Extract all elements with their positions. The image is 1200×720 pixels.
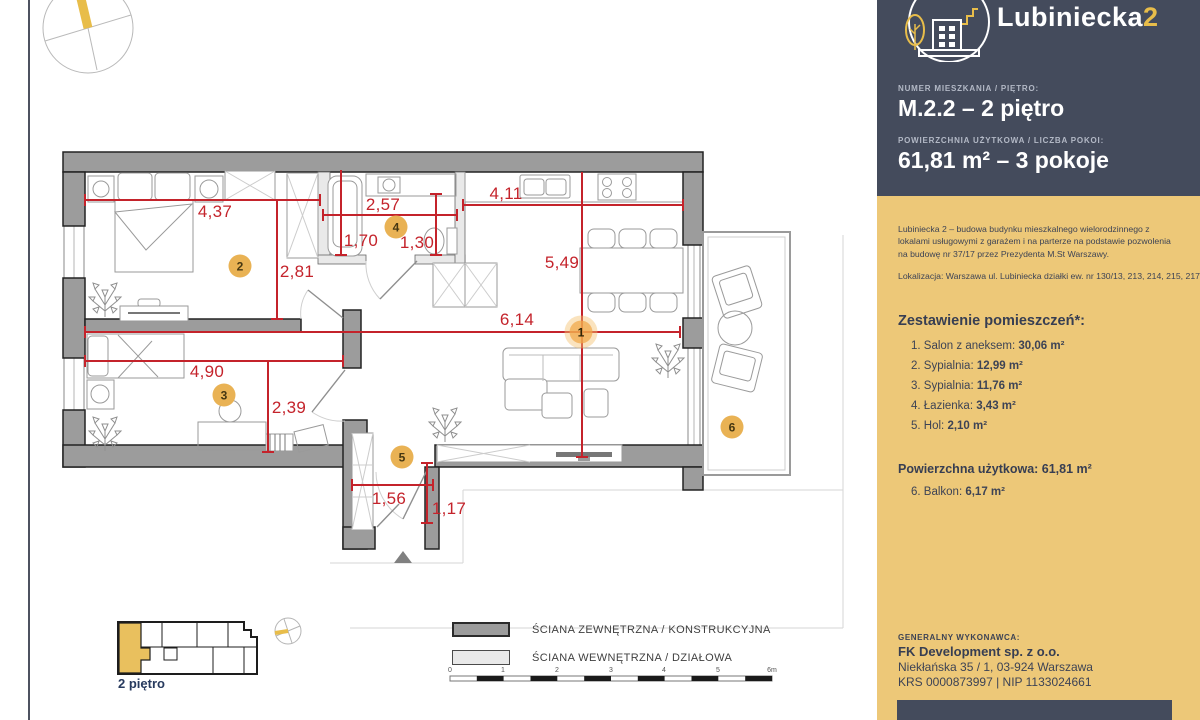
dimension-label: 1,56 [372, 489, 406, 509]
dimension-label: 6,14 [500, 310, 534, 330]
compass-icon [43, 0, 133, 73]
total-area-value: 61,81 m² [1042, 462, 1092, 476]
room-area: 11,76 m² [977, 380, 1022, 392]
project-location: Lokalizacja: Warszawa ul. Lubiniecka dzi… [898, 271, 1198, 281]
apartment-area-label: POWIERZCHNIA UŻYTKOWA / LICZBA POKOI: [898, 136, 1104, 145]
balcony [703, 232, 790, 475]
room-label: 4. Łazienka: [911, 400, 976, 412]
balcony-label: 6. Balkon: [911, 486, 965, 498]
room-badge-5: 5 [391, 446, 414, 469]
dimension-label: 2,39 [272, 398, 306, 418]
logo: Lubiniecka2 [891, 0, 1191, 62]
dimension-label: 5,49 [545, 253, 579, 273]
entrance-arrow-icon [394, 551, 412, 563]
legend-swatch-external-wall [452, 622, 510, 637]
dimension-label: 1,17 [432, 499, 466, 519]
contractor-heading: GENERALNY WYKONAWCA: [898, 633, 1020, 642]
scale-tick: 4 [662, 667, 666, 674]
scale-tick: 6m [767, 667, 777, 674]
scale-tick: 1 [501, 667, 505, 674]
logo-building-icon [891, 0, 1001, 62]
dimension-label: 1,70 [344, 231, 378, 251]
contractor-ids: KRS 0000873997 | NIP 1133024661 [898, 675, 1092, 689]
key-plan-compass-icon [275, 618, 301, 644]
key-plan-floor-label: 2 piętro [118, 676, 165, 691]
legend-swatch-internal-wall [452, 650, 510, 665]
total-area-line: Powierzchna użytkowa: 61,81 m² [898, 462, 1092, 476]
sidebar-body: Lubiniecka 2 – budowa budynku mieszkalne… [877, 196, 1200, 720]
info-sidebar: Lubiniecka2 NUMER MIESZKANIA / PIĘTRO: M… [877, 0, 1200, 720]
balcony-line: 6. Balkon: 6,17 m² [911, 486, 1005, 498]
legend-label-external-wall: ŚCIANA ZEWNĘTRZNA / KONSTRUKCYJNA [532, 624, 771, 636]
logo-wordmark: Lubiniecka2 [997, 2, 1159, 33]
balcony-area: 6,17 m² [965, 486, 1005, 498]
room-area: 2,10 m² [947, 420, 987, 432]
room-badge-2: 2 [229, 255, 252, 278]
hall-wardrobe [352, 433, 373, 530]
total-area-label: Powierzchna użytkowa: [898, 462, 1042, 476]
room-badge-6: 6 [721, 416, 744, 439]
apartment-area-value: 61,81 m² – 3 pokoje [898, 147, 1109, 174]
logo-suffix: 2 [1143, 2, 1159, 32]
bedroom3-furniture [87, 334, 328, 452]
scale-tick: 2 [555, 667, 559, 674]
room-list-heading: Zestawienie pomieszczeń*: [898, 313, 1085, 329]
dimension-label: 4,37 [198, 202, 232, 222]
room-area: 3,43 m² [976, 400, 1016, 412]
dimension-label: 4,11 [489, 184, 522, 204]
living-room-furniture [437, 348, 622, 462]
scale-tick: 3 [609, 667, 613, 674]
contractor-name: FK Development sp. z o.o. [898, 644, 1060, 659]
room-list-item: 3. Sypialnia: 11,76 m² [911, 376, 1181, 396]
dimension-label: 2,57 [366, 195, 400, 215]
room-label: 2. Sypialnia: [911, 360, 977, 372]
project-description: Lubiniecka 2 – budowa budynku mieszkalne… [898, 223, 1180, 260]
room-area: 12,99 m² [977, 360, 1023, 372]
room-badge-4: 4 [385, 216, 408, 239]
contractor-address: Niekłańska 35 / 1, 03-924 Warszawa [898, 660, 1093, 674]
room-area: 30,06 m² [1018, 340, 1064, 352]
key-plan [118, 618, 301, 674]
scale-tick: 0 [448, 667, 452, 674]
room-list-item: 4. Łazienka: 3,43 m² [911, 396, 1181, 416]
room-list-item: 2. Sypialnia: 12,99 m² [911, 356, 1181, 376]
scale-bar [450, 676, 772, 681]
scale-tick: 5 [716, 667, 720, 674]
apartment-number-value: M.2.2 – 2 piętro [898, 95, 1064, 122]
logo-name: Lubiniecka [997, 2, 1143, 32]
apartment-number-label: NUMER MIESZKANIA / PIĘTRO: [898, 84, 1039, 93]
dimension-label: 2,81 [280, 262, 314, 282]
dimension-label: 1,30 [400, 233, 434, 253]
legend-label-internal-wall: ŚCIANA WEWNĘTRZNA / DZIAŁOWA [532, 652, 732, 664]
room-label: 1. Salon z aneksem: [911, 340, 1018, 352]
room-list-item: 5. Hol: 2,10 m² [911, 416, 1181, 436]
room-badge-3: 3 [213, 384, 236, 407]
page-border-line [28, 0, 30, 720]
dimension-label: 4,90 [190, 362, 224, 382]
sidebar-footer-bar [897, 700, 1172, 720]
room-badge-1: 1 [570, 321, 593, 344]
room-list-item: 1. Salon z aneksem: 30,06 m² [911, 336, 1181, 356]
bedroom2-furniture [88, 171, 318, 321]
sidebar-header: Lubiniecka2 NUMER MIESZKANIA / PIĘTRO: M… [877, 0, 1200, 196]
room-label: 3. Sypialnia: [911, 380, 977, 392]
dining-set [580, 229, 683, 312]
room-label: 5. Hol: [911, 420, 947, 432]
room-list: 1. Salon z aneksem: 30,06 m² 2. Sypialni… [911, 336, 1181, 436]
floor-plan-drawing [0, 0, 877, 720]
